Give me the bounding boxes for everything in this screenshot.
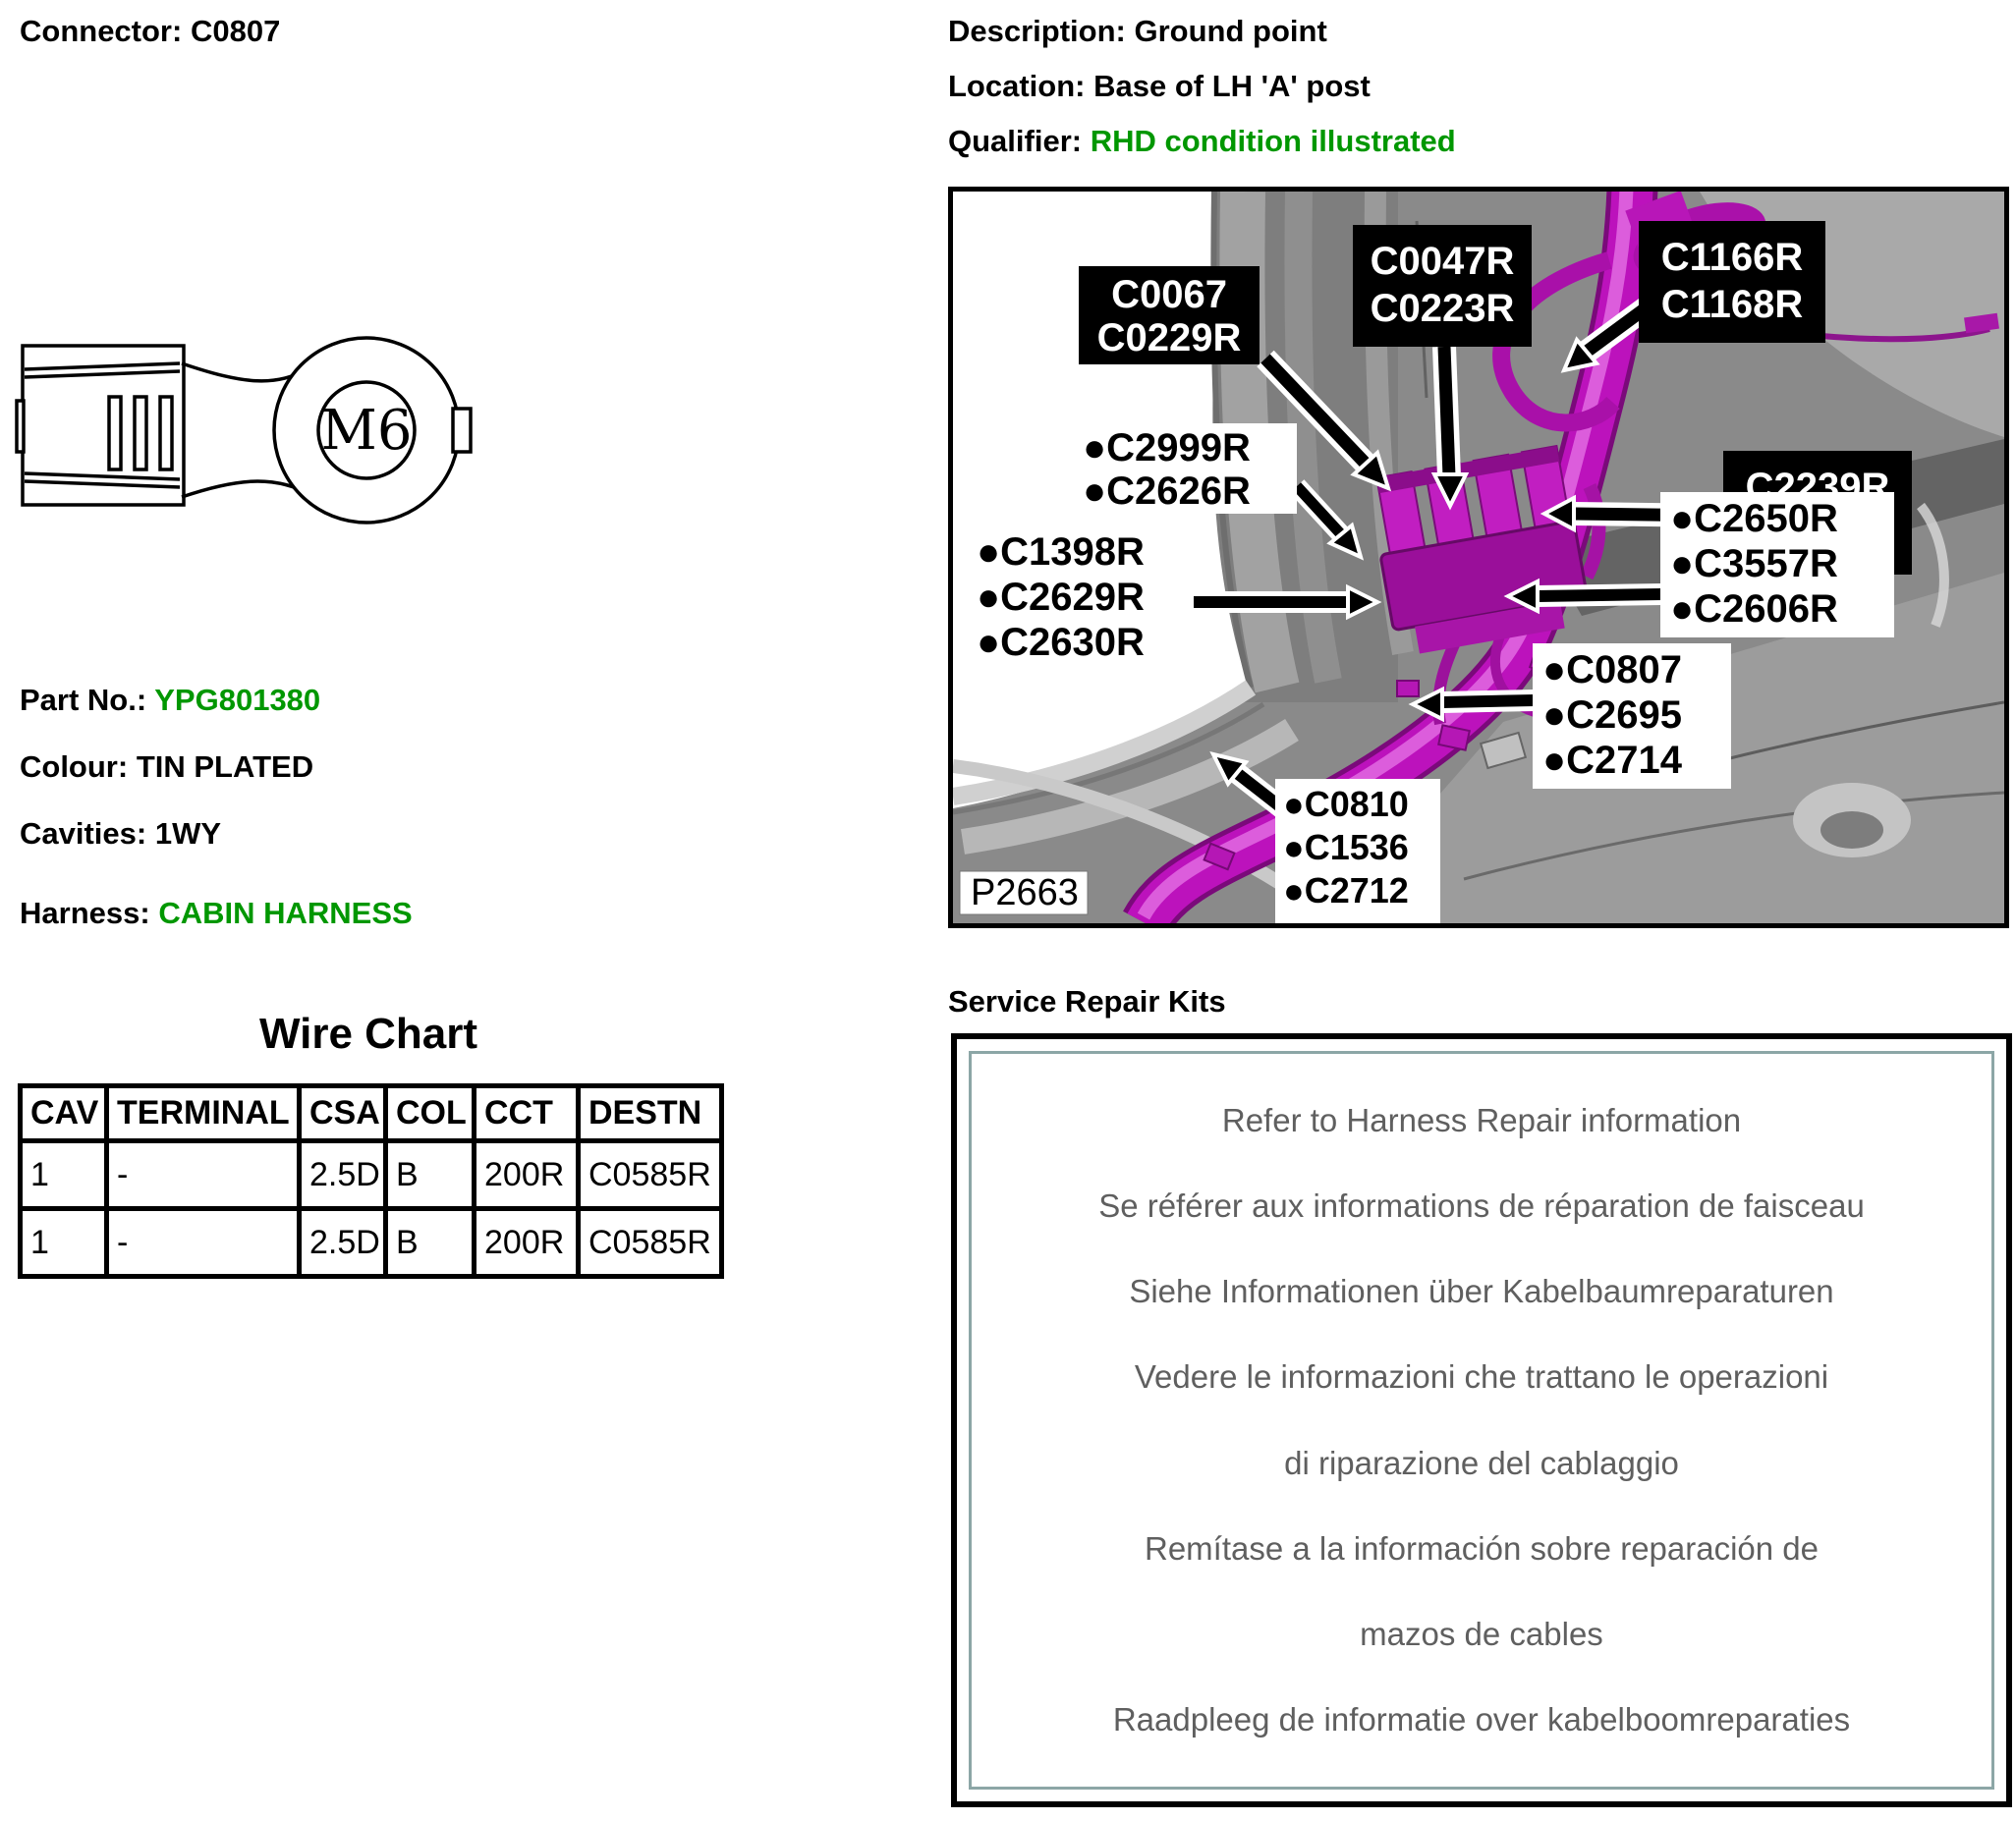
service-line-es-1: Remítase a la información sobre reparaci… — [1145, 1530, 1819, 1568]
col-header-terminal: TERMINAL — [107, 1086, 300, 1141]
connector-value: C0807 — [191, 14, 280, 48]
service-line-fr: Se référer aux informations de réparatio… — [1098, 1187, 1865, 1225]
label-text: ●C2695 — [1542, 693, 1682, 737]
qualifier-label: Qualifier: — [948, 124, 1082, 158]
figure-ref-label: P2663 — [971, 872, 1079, 913]
cell-csa: 2.5D — [300, 1209, 386, 1277]
qualifier-line: Qualifier: RHD condition illustrated — [948, 124, 1456, 159]
wire-chart-title: Wire Chart — [18, 1010, 719, 1059]
page: Connector: C0807 Description: Ground poi… — [0, 0, 2016, 1821]
junction-block — [1367, 445, 1592, 657]
colour-value: TIN PLATED — [137, 749, 313, 784]
label-text: C0047R — [1371, 240, 1515, 283]
terminal-size-label: M6 — [321, 399, 413, 463]
service-line-de: Siehe Informationen über Kabelbaumrepara… — [1129, 1273, 1833, 1310]
service-line-es-2: mazos de cables — [1360, 1616, 1603, 1653]
label-text: C0067 — [1111, 273, 1227, 316]
table-row: 1 - 2.5D B 200R C0585R — [21, 1209, 722, 1277]
cell-destn: C0585R — [579, 1141, 722, 1209]
connector-header: Connector: C0807 — [20, 14, 280, 49]
cell-col: B — [386, 1209, 475, 1277]
floor-hole — [1820, 811, 1883, 849]
cavities-value: 1WY — [155, 816, 221, 851]
table-row: 1 - 2.5D B 200R C0585R — [21, 1141, 722, 1209]
service-repair-kits-title: Service Repair Kits — [948, 984, 1226, 1020]
terminal-tab-left — [17, 401, 24, 452]
label-text: ●C2606R — [1670, 587, 1838, 631]
description-line: Description: Ground point — [948, 14, 1327, 49]
terminal-slot — [135, 397, 146, 469]
arrow-c2629 — [1194, 587, 1377, 617]
label-text: ●C2630R — [977, 621, 1145, 664]
connector-label: Connector: — [20, 14, 182, 48]
description-value: Ground point — [1134, 14, 1326, 48]
colour-line: Colour: TIN PLATED — [20, 749, 313, 785]
col-header-destn: DESTN — [579, 1086, 722, 1141]
service-line-en: Refer to Harness Repair information — [1222, 1102, 1741, 1139]
harness-label: Harness: — [20, 896, 150, 930]
label-text: ●C2626R — [1083, 469, 1251, 513]
part-no-line: Part No.: YPG801380 — [20, 683, 320, 718]
col-header-col: COL — [386, 1086, 475, 1141]
label-text: ●C1398R — [977, 530, 1145, 574]
cell-terminal: - — [107, 1209, 300, 1277]
cell-cav: 1 — [21, 1141, 107, 1209]
label-text: C1166R — [1661, 236, 1804, 279]
cavities-label: Cavities: — [20, 816, 146, 851]
label-text: ●C2999R — [1083, 426, 1251, 469]
harness-value: CABIN HARNESS — [158, 896, 412, 930]
service-line-nl: Raadpleeg de informatie over kabelboomre… — [1113, 1701, 1850, 1738]
service-line-it-2: di riparazione del cablaggio — [1284, 1445, 1679, 1482]
label-text: ●C2714 — [1542, 739, 1683, 782]
part-no-label: Part No.: — [20, 683, 146, 717]
label-text: ●C1536 — [1283, 827, 1409, 867]
part-no-value: YPG801380 — [154, 683, 320, 717]
location-line: Location: Base of LH 'A' post — [948, 69, 1371, 104]
service-line-it-1: Vedere le informazioni che trattano le o… — [1135, 1358, 1828, 1396]
service-repair-kits-box: Refer to Harness Repair information Se r… — [951, 1033, 2012, 1807]
label-text: C0223R — [1371, 287, 1515, 330]
cell-csa: 2.5D — [300, 1141, 386, 1209]
col-header-csa: CSA — [300, 1086, 386, 1141]
terminal-tab-right — [453, 409, 471, 452]
terminal-drawing: M6 — [15, 314, 496, 565]
location-value: Base of LH 'A' post — [1093, 69, 1371, 103]
col-header-cav: CAV — [21, 1086, 107, 1141]
wire-chart-table: CAV TERMINAL CSA COL CCT DESTN 1 - 2.5D … — [18, 1083, 724, 1279]
label-text: ●C3557R — [1670, 542, 1838, 585]
harness-line: Harness: CABIN HARNESS — [20, 896, 413, 931]
cavities-line: Cavities: 1WY — [20, 816, 221, 852]
cell-cav: 1 — [21, 1209, 107, 1277]
terminal-slot — [109, 397, 121, 469]
col-header-cct: CCT — [475, 1086, 579, 1141]
label-text: ●C2629R — [977, 576, 1145, 619]
location-label: Location: — [948, 69, 1086, 103]
service-repair-kits-inner: Refer to Harness Repair information Se r… — [969, 1051, 1994, 1790]
location-illustration: C0067 C0229R C0047R C0223R C1166R C1168R… — [948, 187, 2009, 928]
colour-label: Colour: — [20, 749, 128, 784]
label-text: ●C0807 — [1542, 648, 1682, 691]
cell-destn: C0585R — [579, 1209, 722, 1277]
cell-col: B — [386, 1141, 475, 1209]
qualifier-value: RHD condition illustrated — [1091, 124, 1456, 158]
cell-terminal: - — [107, 1141, 300, 1209]
label-text: ●C0810 — [1283, 784, 1409, 824]
description-label: Description: — [948, 14, 1126, 48]
terminal-slot — [160, 397, 172, 469]
wire-chart-header-row: CAV TERMINAL CSA COL CCT DESTN — [21, 1086, 722, 1141]
label-text: C1168R — [1661, 283, 1804, 326]
label-text: ●C2650R — [1670, 497, 1838, 540]
label-text: ●C2712 — [1283, 870, 1409, 910]
illustration-svg: C0067 C0229R C0047R C0223R C1166R C1168R… — [953, 192, 2004, 923]
cell-cct: 200R — [475, 1141, 579, 1209]
label-text: C0229R — [1097, 316, 1242, 359]
cell-cct: 200R — [475, 1209, 579, 1277]
